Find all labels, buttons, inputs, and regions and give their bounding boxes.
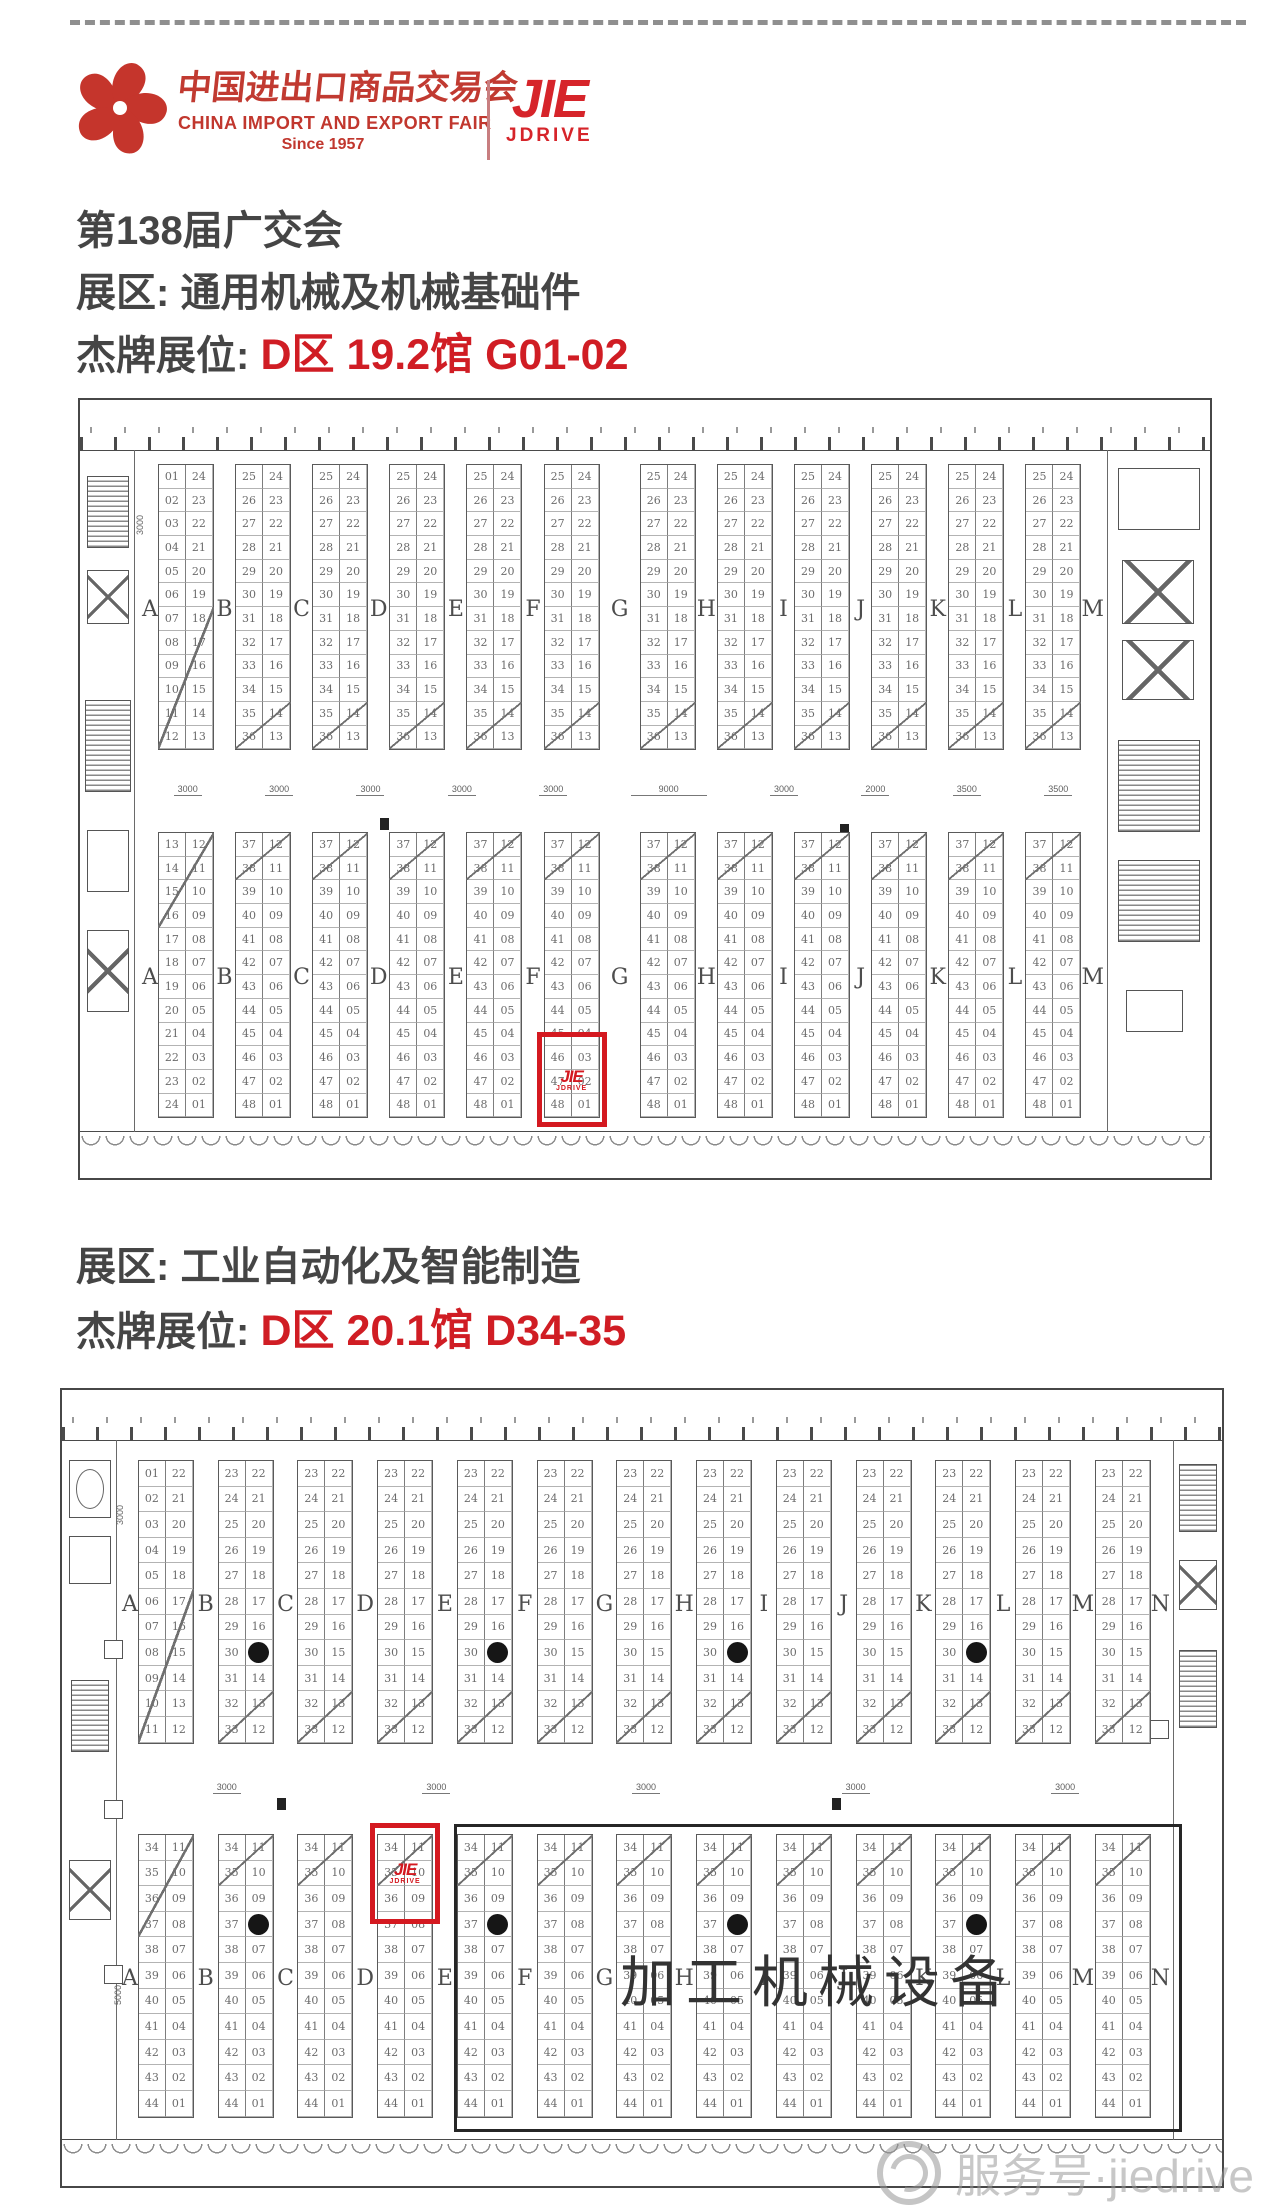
booth-cell: 25	[236, 465, 263, 489]
booth-cell: 26	[378, 1538, 405, 1564]
booth-cell: 32	[313, 631, 340, 655]
booth-cell: 12	[166, 1717, 193, 1743]
booth-cell: 33	[872, 655, 899, 679]
booth-cell: 44	[872, 999, 899, 1023]
booth-cell: 18	[494, 607, 521, 631]
booth-cell: 40	[390, 904, 417, 928]
row-letter: J	[832, 1834, 856, 2122]
booth-cell: 14	[884, 1666, 911, 1692]
booth-cell: 12	[494, 833, 521, 857]
booth-cell: 39	[617, 1963, 644, 1989]
booth-cell: 10	[668, 880, 695, 904]
booth-cell: 12	[804, 1717, 831, 1743]
booth-cell: 35	[617, 1861, 644, 1887]
booth-cell: 04	[724, 2014, 751, 2040]
service-room	[1126, 990, 1183, 1032]
booth-cell: 05	[899, 999, 926, 1023]
booth-cell: 44	[390, 999, 417, 1023]
booth-cell: 06	[884, 1963, 911, 1989]
booth-cell: 28	[219, 1589, 246, 1615]
booth-cell: 07	[186, 951, 213, 975]
booth-cell: 42	[697, 2040, 724, 2066]
booth-cell: 31	[236, 607, 263, 631]
booth-cell: 34	[139, 1835, 166, 1861]
booth-cell: 21	[325, 1487, 352, 1513]
booth-cell: 35	[857, 1861, 884, 1887]
booth-cell: 09	[822, 904, 849, 928]
booth-cell: 11	[159, 702, 186, 726]
booth-cell: 43	[236, 975, 263, 999]
booth-cell: 19	[565, 1538, 592, 1564]
booth-cell: 20	[745, 560, 772, 584]
booth-cell: 38	[458, 1937, 485, 1963]
booth-cell: 40	[219, 1989, 246, 2015]
booth-cell: 32	[777, 1691, 804, 1717]
booth-cell: 41	[313, 928, 340, 952]
booth-cell: 40	[641, 904, 668, 928]
booth-cell: 21	[340, 536, 367, 560]
booth-cell: 41	[1026, 928, 1053, 952]
booth-cell: 46	[236, 1046, 263, 1070]
booth-cell: 34	[1026, 678, 1053, 702]
booth-block: 3411351036093708380739064005410442034302…	[1095, 1834, 1151, 2118]
booth-cell: 04	[159, 536, 186, 560]
booth-cell: 35	[458, 1861, 485, 1887]
booth-cell: 10	[263, 880, 290, 904]
booth-cell: 21	[745, 536, 772, 560]
booth-cell: 39	[949, 880, 976, 904]
booth-cell: 26	[467, 489, 494, 513]
booth-cell: 27	[313, 512, 340, 536]
booth-cell: 42	[718, 951, 745, 975]
booth-cell: 41	[1016, 2014, 1043, 2040]
booth-cell: 01	[159, 465, 186, 489]
booth1-title: 杰牌展位: D区 19.2馆 G01-02	[76, 320, 629, 382]
booth-cell: 16	[1123, 1615, 1150, 1641]
booth-cell: 09	[644, 1886, 671, 1912]
dimension-label: 3000	[842, 1782, 870, 1794]
booth-cell: 10	[976, 880, 1003, 904]
booth-cell: 09	[139, 1666, 166, 1692]
booth-cell: 30	[219, 1640, 246, 1666]
booth-cell: 24	[697, 1487, 724, 1513]
booth-cell: 48	[1026, 1094, 1053, 1118]
booth-cell: 14	[745, 702, 772, 726]
booth-cell: 39	[697, 1963, 724, 1989]
booth-cell: 40	[139, 1989, 166, 2015]
booth-cell: 36	[1016, 1886, 1043, 1912]
booth-cell: 17	[976, 631, 1003, 655]
booth-block: 3411351036093708380739064005410442034302…	[138, 1834, 194, 2118]
booth-cell: 30	[795, 583, 822, 607]
booth-cell: 21	[976, 536, 1003, 560]
booth-cell: 05	[263, 999, 290, 1023]
booth-cell: 09	[1123, 1886, 1150, 1912]
booth-cell: 08	[745, 928, 772, 952]
booth-cell: 17	[745, 631, 772, 655]
booth-cell: 35	[641, 702, 668, 726]
booth-cell: 15	[405, 1640, 432, 1666]
booth-cell: 23	[417, 489, 444, 513]
booth-cell: 36	[777, 1886, 804, 1912]
row-letter: D	[368, 832, 389, 1122]
booth-cell: 08	[565, 1912, 592, 1938]
booth-cell: 19	[325, 1538, 352, 1564]
booth-cell: 09	[263, 904, 290, 928]
row-letter: D	[368, 464, 389, 754]
booth-cell: 16	[166, 1615, 193, 1641]
booth-cell: 41	[538, 2014, 565, 2040]
booth-cell	[246, 1640, 273, 1666]
booth-cell: 13	[572, 726, 599, 750]
booth-cell: 20	[822, 560, 849, 584]
booth-block: 2322242125202619271828172916303114321333…	[696, 1460, 752, 1744]
booth-cell: 25	[390, 465, 417, 489]
booth-block: 3712381139104009410842074306440545044603…	[235, 832, 291, 1118]
booth-cell: 10	[186, 880, 213, 904]
booth-cell: 10	[572, 880, 599, 904]
booth-block: 2524262327222821292030193118321733163415…	[544, 464, 600, 750]
dimension-band: 30003000300030003000	[122, 1748, 1170, 1834]
booth-cell: 37	[857, 1912, 884, 1938]
booth-block: 3712381139104009410842074306440545044603…	[640, 832, 696, 1118]
row-letter: C	[274, 1460, 298, 1748]
booth-cell: 16	[899, 655, 926, 679]
booth-block: 2524262327222821292030193118321733163415…	[466, 464, 522, 750]
dimension-label: 3000	[265, 784, 293, 796]
booth-cell: 06	[644, 1963, 671, 1989]
booth-cell: 07	[166, 1937, 193, 1963]
booth-cell: 11	[963, 1835, 990, 1861]
booth-cell: 14	[325, 1666, 352, 1692]
booth-cell: 39	[378, 1963, 405, 1989]
booth-cell: 03	[724, 2040, 751, 2066]
booth-cell: 38	[467, 857, 494, 881]
booth-cell: 13	[1123, 1691, 1150, 1717]
booth-cell: 37	[617, 1912, 644, 1938]
booth-cell: 40	[298, 1989, 325, 2015]
booth-cell: 43	[538, 2065, 565, 2091]
booth-cell: 15	[263, 678, 290, 702]
booth-cell: 41	[236, 928, 263, 952]
booth-cell: 46	[641, 1046, 668, 1070]
booth-cell: 19	[405, 1538, 432, 1564]
booth-cell: 25	[458, 1512, 485, 1538]
booth-cell: 05	[166, 1989, 193, 2015]
booth-cell: 28	[467, 536, 494, 560]
booth-cell: 17	[822, 631, 849, 655]
booth-cell: 09	[1053, 904, 1080, 928]
booth-cell: 07	[494, 951, 521, 975]
booth-cell: 27	[1016, 1563, 1043, 1589]
booth-cell: 02	[417, 1070, 444, 1094]
booth-cell: 45	[236, 1023, 263, 1047]
booth-cell: 24	[219, 1487, 246, 1513]
booth-cell: 02	[246, 2065, 273, 2091]
stair-box	[85, 700, 131, 792]
bottom-booth-row: A131214111510160917081807190620052104220…	[142, 832, 1104, 1122]
booth-cell: 11	[263, 857, 290, 881]
booth-cell: 25	[298, 1512, 325, 1538]
booth-cell: 41	[777, 2014, 804, 2040]
booth-cell: 12	[822, 833, 849, 857]
booth-cell: 22	[668, 512, 695, 536]
booth-cell: 19	[884, 1538, 911, 1564]
booth-cell: 24	[1053, 465, 1080, 489]
booth-cell: 13	[822, 726, 849, 750]
booth-cell: 11	[186, 857, 213, 881]
row-letter: J	[850, 832, 871, 1122]
booth-cell: 16	[884, 1615, 911, 1641]
booth-cell: 01	[263, 1094, 290, 1118]
booth-cell: 17	[159, 928, 186, 952]
booth-cell: 06	[668, 975, 695, 999]
booth-cell: 11	[340, 857, 367, 881]
booth-cell: 33	[936, 1717, 963, 1743]
booth-cell: 02	[668, 1070, 695, 1094]
booth-cell: 06	[804, 1963, 831, 1989]
booth-cell: 35	[936, 1861, 963, 1887]
booth-cell: 39	[139, 1963, 166, 1989]
booth-cell: 38	[641, 857, 668, 881]
booth-cell: 19	[899, 583, 926, 607]
booth-cell: 36	[795, 726, 822, 750]
booth-cell: 06	[139, 1589, 166, 1615]
booth-cell: 04	[417, 1023, 444, 1047]
booth-cell: 25	[378, 1512, 405, 1538]
booth-block: 3712381139104009410842074306440545044603…	[466, 832, 522, 1118]
booth-cell: 19	[186, 583, 213, 607]
booth-cell: 37	[139, 1912, 166, 1938]
booth-cell: 02	[976, 1070, 1003, 1094]
booth-cell: 15	[745, 678, 772, 702]
booth-cell: 32	[390, 631, 417, 655]
booth-cell: 35	[697, 1861, 724, 1887]
booth-cell: 47	[949, 1070, 976, 1094]
booth-cell: 05	[724, 1989, 751, 2015]
booth-cell: 47	[795, 1070, 822, 1094]
booth-cell: 06	[822, 975, 849, 999]
booth-cell: 26	[936, 1538, 963, 1564]
booth-cell: 44	[617, 2091, 644, 2117]
booth-block: 2524262327222821292030193118321733163415…	[389, 464, 445, 750]
booth-cell: 20	[494, 560, 521, 584]
booth-cell: 31	[795, 607, 822, 631]
booth-cell: 31	[458, 1666, 485, 1692]
booth-cell: 13	[884, 1691, 911, 1717]
booth-cell: 39	[872, 880, 899, 904]
booth-cell: 16	[804, 1615, 831, 1641]
booth-cell: 42	[777, 2040, 804, 2066]
booth-cell: 01	[139, 1461, 166, 1487]
booth-cell: 14	[166, 1666, 193, 1692]
booth-cell: 20	[263, 560, 290, 584]
booth-cell: 39	[718, 880, 745, 904]
booth-cell: 06	[166, 1963, 193, 1989]
booth-cell: 21	[1123, 1487, 1150, 1513]
booth-cell: 07	[417, 951, 444, 975]
booth-cell: 22	[1123, 1461, 1150, 1487]
booth-cell: 11	[166, 1835, 193, 1861]
booth-cell: 41	[390, 928, 417, 952]
booth-cell: 24	[572, 465, 599, 489]
watermark-text: 服务号·jiedrive	[955, 2140, 1254, 2206]
booth-cell: 27	[936, 1563, 963, 1589]
booth-cell: 07	[644, 1937, 671, 1963]
booth-cell: 15	[417, 678, 444, 702]
booth-cell: 41	[697, 2014, 724, 2040]
booth-cell: 08	[159, 631, 186, 655]
booth-block: 3411351036093708380739064005410442034302…	[776, 1834, 832, 2118]
booth-cell: 25	[936, 1512, 963, 1538]
booth-cell: 10	[822, 880, 849, 904]
booth-cell: 02	[325, 2065, 352, 2091]
booth-cell: 27	[795, 512, 822, 536]
booth-cell: 09	[899, 904, 926, 928]
booth-cell	[485, 1640, 512, 1666]
booth-cell: 27	[236, 512, 263, 536]
booth-cell: 36	[390, 726, 417, 750]
booth-cell: 07	[745, 951, 772, 975]
booth-cell: 38	[795, 857, 822, 881]
booth-cell: 42	[617, 2040, 644, 2066]
booth-cell: 20	[724, 1512, 751, 1538]
booth-cell: 36	[538, 1886, 565, 1912]
booth-cell: 15	[572, 678, 599, 702]
booth-cell: 32	[949, 631, 976, 655]
dashed-divider	[70, 20, 1246, 25]
booth-cell: 34	[467, 678, 494, 702]
booth-cell: 18	[572, 607, 599, 631]
booth-cell: 01	[494, 1094, 521, 1118]
booth-cell: 04	[325, 2014, 352, 2040]
booth-cell: 06	[340, 975, 367, 999]
row-letter: I	[773, 832, 794, 1122]
booth-block: 3712381139104009410842074306440545044603…	[717, 832, 773, 1118]
booth-cell: 34	[458, 1835, 485, 1861]
booth-cell: 47	[313, 1070, 340, 1094]
booth-cell: 46	[872, 1046, 899, 1070]
row-letter: H	[672, 1834, 696, 2122]
booth-cell: 04	[884, 2014, 911, 2040]
booth-cell: 09	[963, 1886, 990, 1912]
booth-cell: 45	[1026, 1023, 1053, 1047]
booth-cell: 09	[668, 904, 695, 928]
booth-cell: 09	[166, 1886, 193, 1912]
booth-cell: 36	[697, 1886, 724, 1912]
booth-cell: 20	[565, 1512, 592, 1538]
booth-cell: 48	[795, 1094, 822, 1118]
booth-cell: 04	[186, 1023, 213, 1047]
booth-cell: 01	[884, 2091, 911, 2117]
booth-cell: 27	[1096, 1563, 1123, 1589]
booth-cell: 21	[186, 536, 213, 560]
booth-cell: 31	[872, 607, 899, 631]
booth-cell: 18	[340, 607, 367, 631]
booth-cell: 03	[884, 2040, 911, 2066]
booth-cell: 44	[219, 2091, 246, 2117]
booth-cell: 28	[458, 1589, 485, 1615]
booth-cell: 29	[1096, 1615, 1123, 1641]
booth-cell: 12	[417, 833, 444, 857]
booth-cell: 08	[644, 1912, 671, 1938]
booth-cell: 35	[219, 1861, 246, 1887]
booth-cell: 10	[485, 1861, 512, 1887]
booth-cell: 44	[236, 999, 263, 1023]
booth-cell: 41	[1096, 2014, 1123, 2040]
booth-cell: 12	[899, 833, 926, 857]
booth-cell: 46	[718, 1046, 745, 1070]
booth-cell: 18	[1053, 607, 1080, 631]
booth-cell: 17	[246, 1589, 273, 1615]
row-letter: N	[1151, 1460, 1170, 1748]
booth-cell: 44	[718, 999, 745, 1023]
booth-cell: 12	[325, 1717, 352, 1743]
booth-cell: 17	[325, 1589, 352, 1615]
elevator-box	[69, 1860, 111, 1920]
booth-cell: 15	[340, 678, 367, 702]
booth-cell: 25	[777, 1512, 804, 1538]
booth-block: 2322242125202619271828172916301531143213…	[616, 1460, 672, 1744]
booth-cell: 11	[325, 1835, 352, 1861]
booth-cell: 35	[467, 702, 494, 726]
booth-cell: 06	[263, 975, 290, 999]
booth-cell: 42	[139, 2040, 166, 2066]
booth-cell: 32	[219, 1691, 246, 1717]
booth-block: 3411351036093738073906400541044203430244…	[935, 1834, 991, 2118]
booth-cell: 36	[545, 726, 572, 750]
booth-cell: 05	[963, 1989, 990, 2015]
booth-cell: 32	[936, 1691, 963, 1717]
booth-cell: 12	[1053, 833, 1080, 857]
booth-cell: 28	[872, 536, 899, 560]
booth-cell: 20	[899, 560, 926, 584]
booth-cell: 09	[417, 904, 444, 928]
booth-cell: 13	[899, 726, 926, 750]
booth-cell: 15	[186, 678, 213, 702]
booth-cell: 37	[1026, 833, 1053, 857]
booth-cell: 21	[822, 536, 849, 560]
booth-cell: 21	[804, 1487, 831, 1513]
booth-cell: 23	[458, 1461, 485, 1487]
booth-cell: 06	[565, 1963, 592, 1989]
booth2-label: 杰牌展位:	[76, 1310, 249, 1354]
row-letter: G	[593, 1460, 617, 1748]
booth-cell: 02	[263, 1070, 290, 1094]
dimension-label: 3500	[953, 784, 981, 796]
booth-cell: 32	[378, 1691, 405, 1717]
booth-cell: 43	[777, 2065, 804, 2091]
booth-cell: 31	[1016, 1666, 1043, 1692]
booth-cell: 30	[777, 1640, 804, 1666]
booth-cell: 14	[565, 1666, 592, 1692]
booth-block: 3712381139104009410842074306440545044603…	[312, 832, 368, 1118]
booth-cell: 44	[458, 2091, 485, 2117]
booth-cell: 13	[405, 1691, 432, 1717]
booth-cell: 48	[467, 1094, 494, 1118]
booth-cell: 23	[494, 489, 521, 513]
booth-cell: 01	[644, 2091, 671, 2117]
booth-cell: 28	[236, 536, 263, 560]
booth-cell: 15	[1043, 1640, 1070, 1666]
floorplan-hall-19-2: 3000 A0124022303220421052006190718081709…	[78, 398, 1212, 1180]
booth-cell: 42	[298, 2040, 325, 2066]
booth-cell: 32	[1026, 631, 1053, 655]
booth-cell: 42	[467, 951, 494, 975]
booth-cell: 34	[538, 1835, 565, 1861]
booth-cell: 34	[298, 1835, 325, 1861]
booth-cell: 21	[1053, 536, 1080, 560]
